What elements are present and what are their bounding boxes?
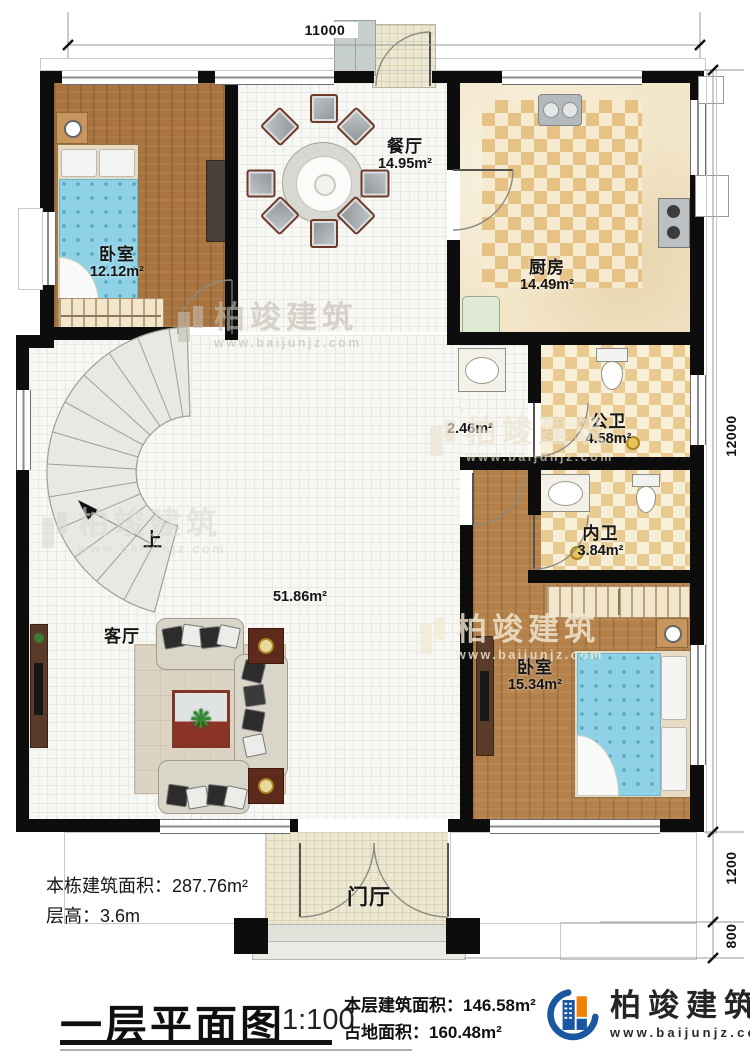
burner [667,205,680,218]
window [215,70,334,85]
bed-bedroom2 [574,650,691,798]
dining-chair [361,170,390,198]
porch-right-outline [450,832,697,924]
tv-console-bedroom2 [476,636,494,756]
room-label-living: 客厅 [80,627,164,646]
dining-chair [310,94,338,123]
lamp-icon [664,625,682,643]
inner-bath-counter [540,474,590,512]
wall [460,457,704,470]
dresser [206,160,226,242]
floor-plan-page: { "dims": {"top": "11000", "right_main":… [0,0,750,1058]
pillow [661,656,687,720]
pillow [661,727,687,791]
room-label-dining: 餐厅14.95m² [350,137,460,172]
wardrobe-bedroom2 [546,586,690,618]
pillow [99,149,135,177]
room-label-public-bath: 公卫4.58m² [556,412,661,447]
window [502,70,642,85]
window [490,819,660,834]
title-underline [60,1040,332,1045]
room-label-kitchen: 厨房14.49m² [492,258,602,293]
wall [460,525,473,820]
table-center [314,174,336,196]
facade-line [40,58,706,71]
dimension-top: 11000 [292,22,358,38]
tv-icon [34,663,43,715]
sofa-top [156,618,244,670]
coffee-table: ❋ [172,690,230,748]
table-ornament [258,638,274,654]
dining-chair [310,219,338,248]
wall [54,327,178,340]
room-label-inner-bath: 内卫3.84m² [548,524,653,559]
facade-line [706,70,717,834]
footprint-text: 占地面积：160.48m² [344,1019,536,1046]
brand-logo-icon [542,988,600,1042]
brand-url: www.baijunjz.com [610,1025,750,1040]
window [160,819,290,834]
steps-right-outline [560,922,697,960]
wall [528,470,541,515]
floor-area-text: 本层建筑面积：146.58m² [344,992,536,1019]
dining-chair [247,170,276,198]
plant-icon: ❋ [190,706,212,732]
porch-column [446,918,480,954]
sofa-bottom [158,760,250,814]
building-area-note: 本栋建筑面积：287.76m² [46,872,248,898]
nightstand [56,112,88,144]
sink-basin [562,102,578,118]
window-sill [18,208,43,290]
side-table [248,628,284,664]
wall [225,70,238,340]
window [16,390,31,470]
wall [460,457,473,470]
nightstand [656,618,688,648]
burner [667,226,680,239]
wall [447,240,460,345]
washbasin [465,357,499,384]
living-area-label: 51.86m² [258,589,342,605]
porch-entry-floor [372,24,436,88]
room-label-bedroom2: 卧室15.34m² [480,658,590,693]
tv-console-living [30,624,48,748]
dimension-right-main: 12000 [723,412,739,460]
window [62,70,198,85]
sofa-cushion [216,624,241,649]
sofa-cushion [241,708,265,732]
window [690,100,706,175]
corridor-washbasin-counter [458,348,506,392]
toilet-public-bath [596,348,628,362]
sofa-cushion [242,733,267,758]
title-underline-light [60,1049,412,1051]
sink-basin [543,102,559,118]
room-label-bedroom1: 卧室12.12m² [62,245,172,280]
stairs-up-label: 上 [136,530,170,551]
wall [528,345,541,403]
dimension-right-steps: 800 [723,916,739,956]
brand-logo: 柏竣建筑 www.baijunjz.com [542,988,750,1042]
lamp-icon [64,120,82,138]
wall [528,570,704,583]
corridor-area-label: 2.46m² [432,421,508,437]
floor-height-note: 层高：3.6m [46,902,140,928]
plant-icon [34,633,44,643]
side-table [248,768,284,804]
window [690,645,706,765]
sofa-cushion [243,684,267,708]
footer-areas: 本层建筑面积：146.58m² 占地面积：160.48m² [344,992,536,1046]
wall [447,332,704,345]
table-ornament [258,778,274,794]
entry-step [252,941,466,960]
pillow [61,149,97,177]
kitchen-sink [538,94,582,126]
stove [658,198,690,248]
room-label-foyer: 门厅 [327,886,411,910]
porch-column [234,918,268,954]
foyer-floor [266,832,448,924]
sofa-cushion [223,785,248,810]
washbasin [548,481,583,506]
dimension-right-porch: 1200 [723,846,739,890]
brand-name: 柏竣建筑 [610,988,750,1023]
window [690,375,706,445]
